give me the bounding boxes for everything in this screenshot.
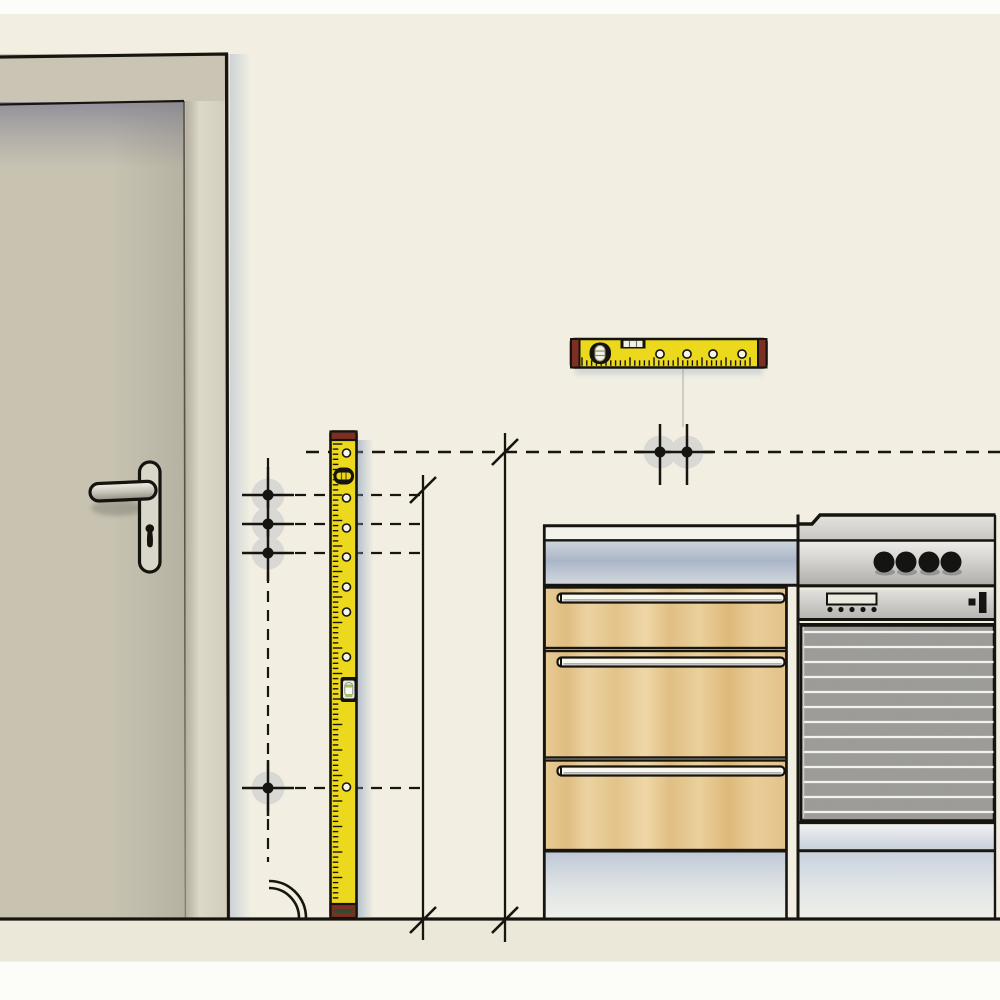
plumb-vial (341, 677, 358, 702)
oven-knob (919, 552, 940, 573)
level-hole (683, 350, 691, 358)
drill-dot (682, 447, 693, 458)
level-hole (343, 524, 351, 532)
level-body (331, 432, 357, 919)
level-hole (343, 449, 351, 457)
level-hole (343, 494, 351, 502)
page-margin-bottom (0, 962, 1000, 1000)
handle-bar-icon (979, 592, 987, 613)
level-hole (343, 653, 351, 661)
kitchen-cabinet (543, 525, 798, 919)
oven-plinth (800, 825, 995, 850)
display-dot (849, 607, 854, 612)
cooktop-surface (799, 515, 996, 540)
illustration-canvas (0, 0, 1000, 1000)
power-square-icon (969, 599, 976, 606)
level-hole (738, 350, 746, 358)
oven (798, 515, 996, 919)
display-window (827, 594, 877, 605)
drill-dot (263, 548, 274, 559)
oven-knob (896, 552, 917, 573)
illustration-kitchen-installation (0, 0, 1000, 1000)
drawer-handle (558, 593, 785, 604)
level-top-cap (331, 432, 357, 441)
level-hole (343, 783, 351, 791)
top-vial (621, 339, 646, 349)
handle-bar (558, 767, 785, 776)
level-hole (343, 608, 351, 616)
drawer-fronts (545, 588, 787, 851)
handle-bar (558, 658, 785, 667)
drawer-handle (558, 657, 785, 668)
display-dot (827, 607, 832, 612)
oven-knob (941, 552, 962, 573)
level-hole (709, 350, 717, 358)
cabinet-plinth-recess (545, 852, 785, 918)
display-dot (838, 607, 843, 612)
horizontal-spirit-level (571, 339, 767, 378)
oven-knob (874, 552, 895, 573)
door-jamb (186, 101, 227, 918)
level-hole (656, 350, 664, 358)
keyhole-slot (147, 532, 153, 548)
display-dot (871, 607, 876, 612)
oven-recess (800, 853, 995, 918)
level-bottom-cap-stripe (334, 909, 354, 913)
level-shadow (575, 368, 763, 378)
level-right-cap (758, 339, 767, 368)
vertical-spirit-level (331, 432, 374, 919)
horizontal-vial (334, 468, 355, 485)
page-margin-top (0, 0, 1000, 14)
cabinet-top-strip (544, 527, 798, 540)
handle-bar (558, 594, 785, 603)
vertical-vial (590, 343, 612, 365)
level-left-cap (571, 339, 580, 368)
display-dot (860, 607, 865, 612)
handle-lever (90, 481, 157, 501)
level-hole (343, 583, 351, 591)
drawer-handle (558, 766, 785, 777)
level-hole (343, 553, 351, 561)
level-shadow (358, 440, 374, 918)
door (0, 54, 251, 918)
drill-dot (263, 783, 274, 794)
countertop-edge (544, 542, 798, 585)
handle-plate (140, 462, 161, 572)
